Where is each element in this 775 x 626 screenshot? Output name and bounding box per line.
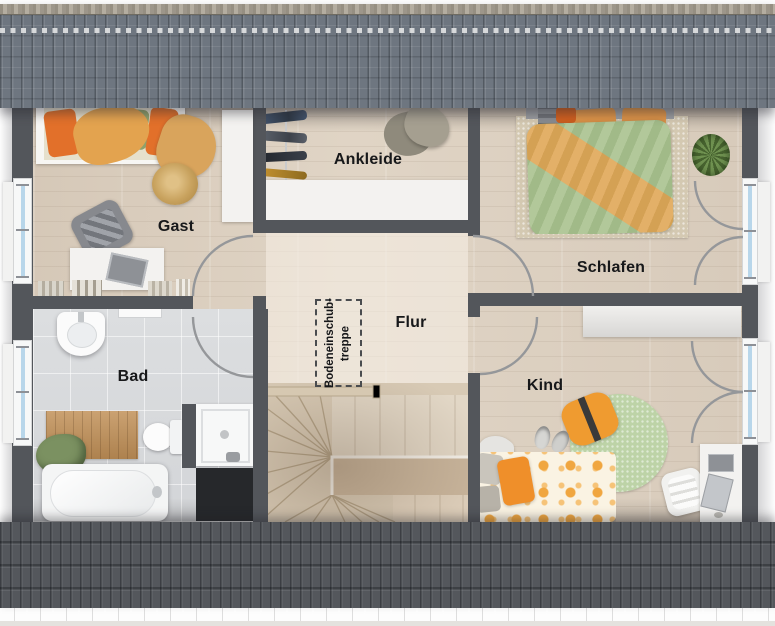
room-label-schlafen: Schlafen (577, 259, 645, 277)
monitor (708, 454, 734, 472)
roof-bottom (0, 522, 775, 608)
sink-faucet (78, 312, 84, 322)
floor-plan: Gast Ankleide Schlafen Flur Bad Kind Bod… (0, 0, 775, 626)
roof-tile-highlights (0, 28, 775, 33)
exterior-shadow-left (0, 96, 12, 526)
wall-gast-bad (33, 296, 193, 309)
toilet (143, 420, 185, 454)
bathroom-sink (57, 312, 105, 356)
staircase (265, 383, 470, 522)
window-tick (16, 391, 29, 393)
attic-hatch-outline: Bodeneinschub- treppe (315, 299, 362, 387)
wall-ankleide-schlafen (468, 106, 480, 236)
pillow-dark-orange (556, 107, 576, 123)
double-bed (526, 106, 674, 234)
wall-gast-ankleide (253, 106, 266, 233)
window-tick (744, 437, 755, 439)
wall-flur-kind (468, 373, 480, 522)
room-label-flur: Flur (395, 314, 426, 332)
window-gast (13, 178, 32, 284)
stair-handrail (267, 387, 379, 396)
guest-wardrobe (222, 110, 253, 222)
attic-hatch-label: Bodeneinschub- treppe (323, 298, 354, 388)
toilet-bowl (143, 423, 173, 451)
laptop (700, 473, 733, 512)
exterior-shadow-right (758, 96, 775, 526)
window-bad (13, 340, 32, 446)
window-schlafen (742, 178, 758, 285)
room-label-bad: Bad (118, 368, 149, 386)
window-tick (16, 276, 29, 278)
wardrobe-sideboard (262, 180, 470, 221)
room-label-ankleide: Ankleide (334, 151, 402, 169)
roof-top (0, 4, 775, 108)
bathtub-faucet (152, 486, 162, 498)
window-sill (757, 182, 770, 282)
wall-schlafen-kind (468, 293, 742, 306)
kids-desk (700, 444, 746, 522)
shower-fixture (226, 452, 240, 462)
window-tick (744, 277, 755, 279)
duvet-folds (526, 120, 674, 234)
window-tick (744, 344, 755, 346)
roof-ridge-cap (0, 4, 775, 15)
wall-shower (182, 404, 196, 468)
duvet-green (526, 120, 674, 234)
kids-wardrobe (583, 306, 741, 337)
window-tick (16, 184, 29, 186)
mouse (714, 512, 723, 518)
window-tick (744, 390, 755, 392)
shower (196, 404, 253, 466)
window-tick (744, 184, 755, 186)
bean-bag-strap (578, 397, 602, 442)
kids-bed (476, 452, 616, 522)
roof-gutter (0, 608, 775, 621)
room-label-gast: Gast (158, 218, 194, 236)
sink-bowl (67, 322, 97, 348)
desk-chair-seat (667, 473, 702, 511)
window-tick (16, 438, 29, 440)
bathtub-inner (50, 470, 156, 517)
wall-bad-treppe (253, 309, 268, 522)
window-tick (16, 229, 29, 231)
shower-drain (220, 430, 229, 439)
wall-exterior-left (12, 100, 33, 522)
armchair-cushion (79, 207, 126, 252)
wall-stub-kind-door (468, 306, 480, 317)
wall-ankleide-flur (253, 220, 480, 233)
wall-stub-bad-door (253, 296, 266, 309)
bathtub (42, 464, 168, 521)
window-tick (16, 346, 29, 348)
wall-exterior-right (742, 100, 758, 522)
window-kind (742, 338, 758, 445)
roof-gutter-edge (0, 621, 775, 626)
towel-rail (118, 308, 162, 318)
shower-duct-void (196, 468, 253, 521)
wicker-pouf (152, 163, 198, 205)
room-label-kind: Kind (527, 377, 563, 395)
potted-plant (692, 134, 730, 176)
window-sill (757, 342, 770, 442)
window-tick (744, 230, 755, 232)
